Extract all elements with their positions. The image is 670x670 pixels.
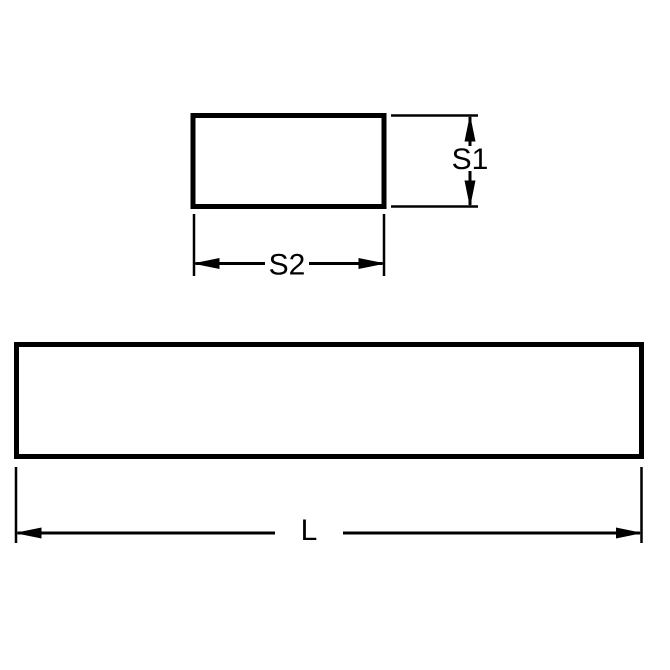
s2-dimension: S2 xyxy=(193,214,386,282)
cross-section-rectangle xyxy=(193,116,384,207)
length-dimension-label: L xyxy=(301,514,318,547)
length-dimension: L xyxy=(15,467,644,547)
technical-drawing-canvas: S1 S2 xyxy=(0,0,670,670)
s2-arrow-right-icon xyxy=(359,258,386,269)
s1-dimension: S1 xyxy=(391,115,488,208)
side-view-rectangle xyxy=(17,345,642,457)
s2-dimension-label: S2 xyxy=(269,249,306,282)
dimension-drawing-svg: S1 S2 xyxy=(0,0,670,670)
s1-arrow-down-icon xyxy=(465,181,476,208)
s1-arrow-up-icon xyxy=(465,115,476,142)
cross-section-view: S1 S2 xyxy=(193,115,489,282)
s2-arrow-left-icon xyxy=(193,258,220,269)
s1-dimension-label: S1 xyxy=(452,143,489,176)
length-arrow-left-icon xyxy=(15,528,42,539)
length-arrow-right-icon xyxy=(616,528,643,539)
side-view: L xyxy=(15,345,644,548)
